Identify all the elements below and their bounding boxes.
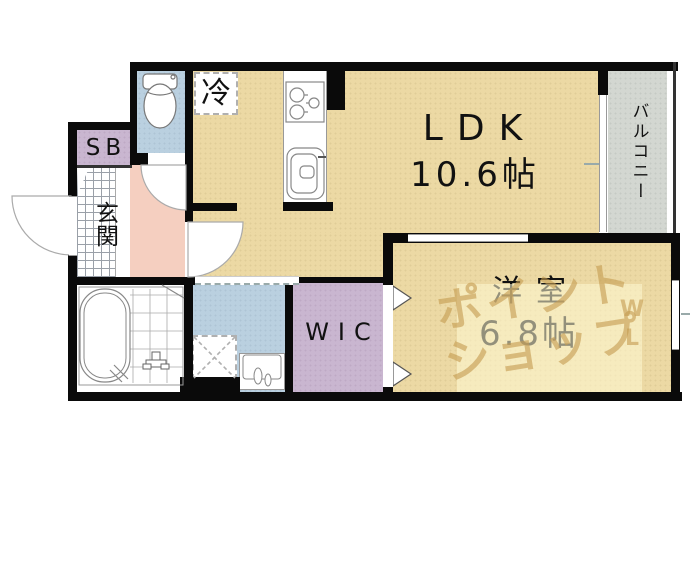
wall-bath-washroom [184, 283, 193, 392]
wall-balcony-stub [598, 71, 608, 95]
watermark-mark-top: W [620, 296, 644, 325]
entrance-door-swing [12, 196, 71, 255]
refrigerator-label: 冷 [194, 72, 238, 115]
wall-toilet-door-stub [130, 153, 148, 165]
balcony-label: バルコニー [620, 76, 656, 228]
wall-washroom-wic [285, 283, 293, 392]
entrance-door-opening [69, 196, 77, 256]
wall-top [130, 62, 678, 71]
entrance-label: 玄関 [88, 194, 120, 254]
wall-toilet-left [130, 62, 137, 165]
wall-kitchen-stub [327, 71, 345, 110]
washroom-sliding-door [195, 276, 299, 285]
bedroom-sliding-opening [408, 234, 528, 242]
washing-machine-space [192, 335, 237, 380]
wall-bottom [68, 392, 682, 401]
room-ldk-lower [193, 233, 383, 277]
wall-wic-door-foot [383, 387, 393, 392]
wall-kitchen-bottom [283, 202, 333, 211]
wic-door-track [383, 285, 393, 387]
vanity-sink [239, 353, 285, 390]
wall-shoebox-top [68, 122, 137, 130]
room-toilet [137, 71, 185, 155]
wall-hall-ldk [185, 165, 193, 222]
watermark-mark-bottom: L [625, 325, 639, 354]
floor-plan: LDK 10.6帖 洋室 6.8帖 バルコニー WIC 玄関 SB 冷 ポイント… [0, 0, 690, 575]
toilet-doorway [148, 153, 185, 165]
wall-wic-top [293, 277, 383, 283]
kitchen-counter [283, 67, 327, 211]
wall-bath-top [68, 277, 195, 285]
wall-left-upper [68, 130, 77, 197]
room-bathroom [77, 285, 185, 392]
ldk-area-label: 10.6帖 [375, 152, 575, 198]
bedroom-window [672, 280, 679, 350]
wall-nook-stub [190, 203, 237, 211]
ldk-label: LDK [380, 108, 565, 150]
wic-label: WIC [293, 318, 383, 346]
room-hallway [130, 165, 185, 277]
balcony-rail-line [673, 62, 676, 233]
wall-ldk-wic [383, 243, 393, 287]
balcony-sliding-door [599, 95, 607, 232]
wall-toilet-right [185, 62, 193, 165]
shoe-box-label: SB [77, 130, 130, 166]
watermark-side-mark: W L [620, 296, 644, 353]
